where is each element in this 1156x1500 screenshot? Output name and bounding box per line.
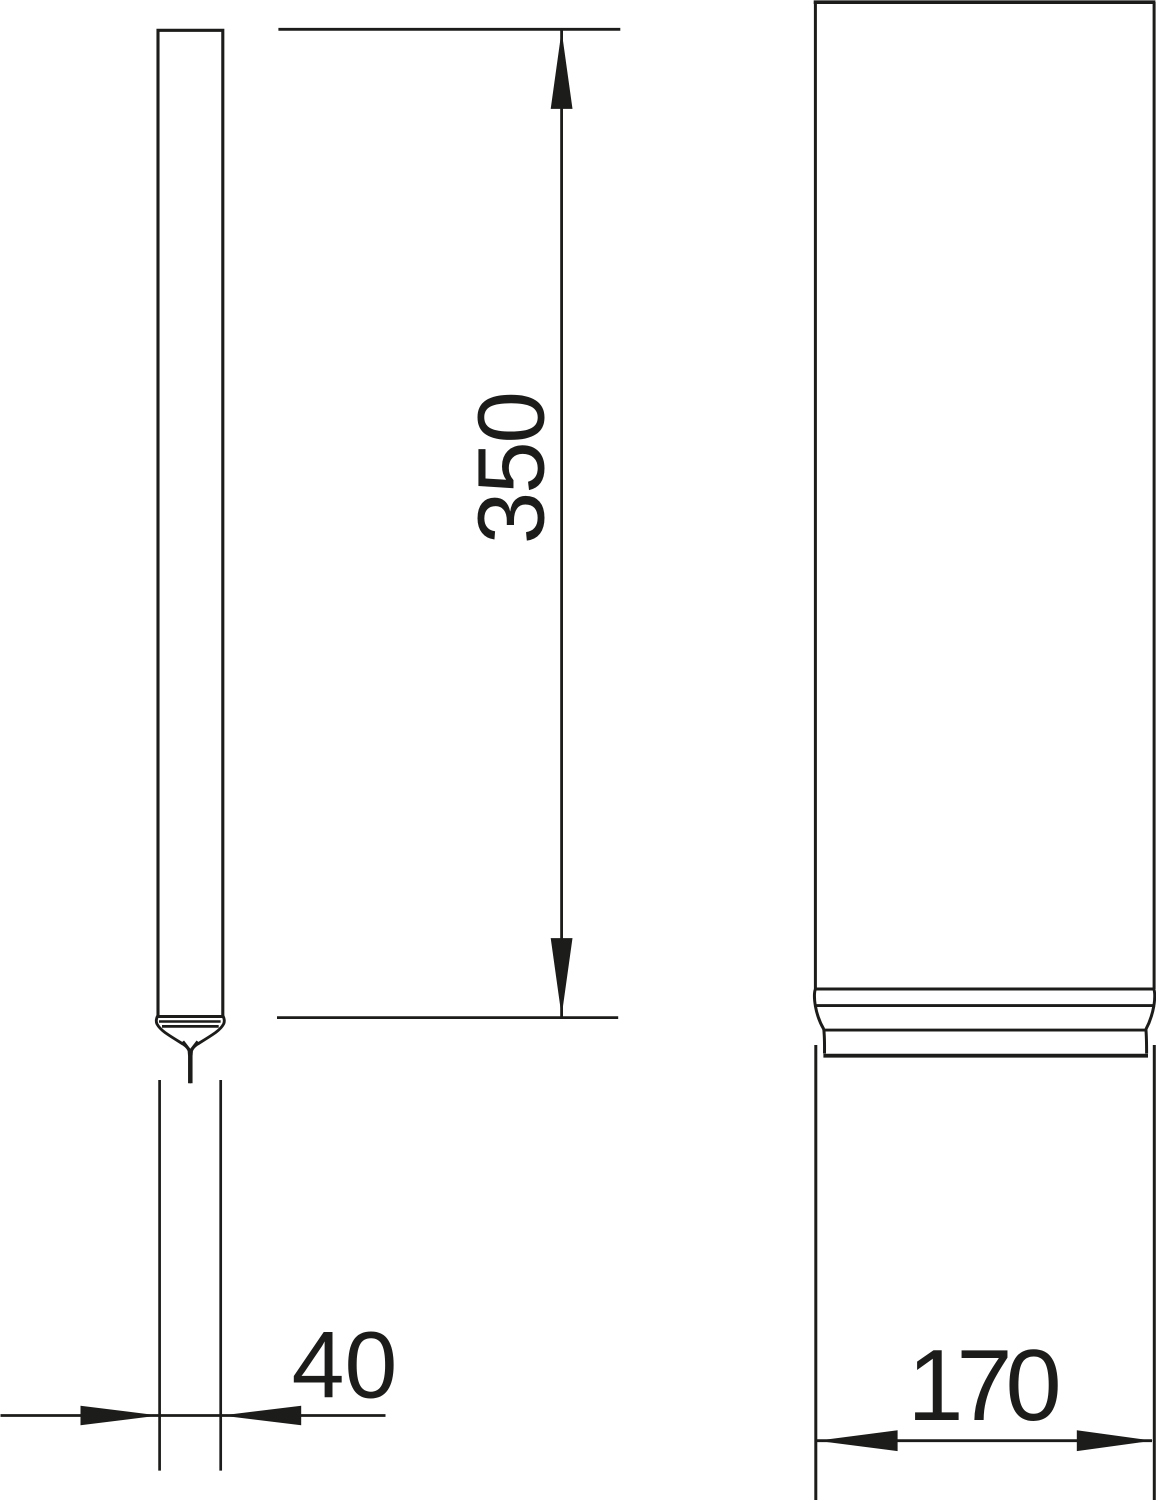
- svg-text:350: 350: [459, 391, 565, 544]
- svg-text:40: 40: [292, 1313, 398, 1419]
- svg-text:170: 170: [907, 1330, 1061, 1442]
